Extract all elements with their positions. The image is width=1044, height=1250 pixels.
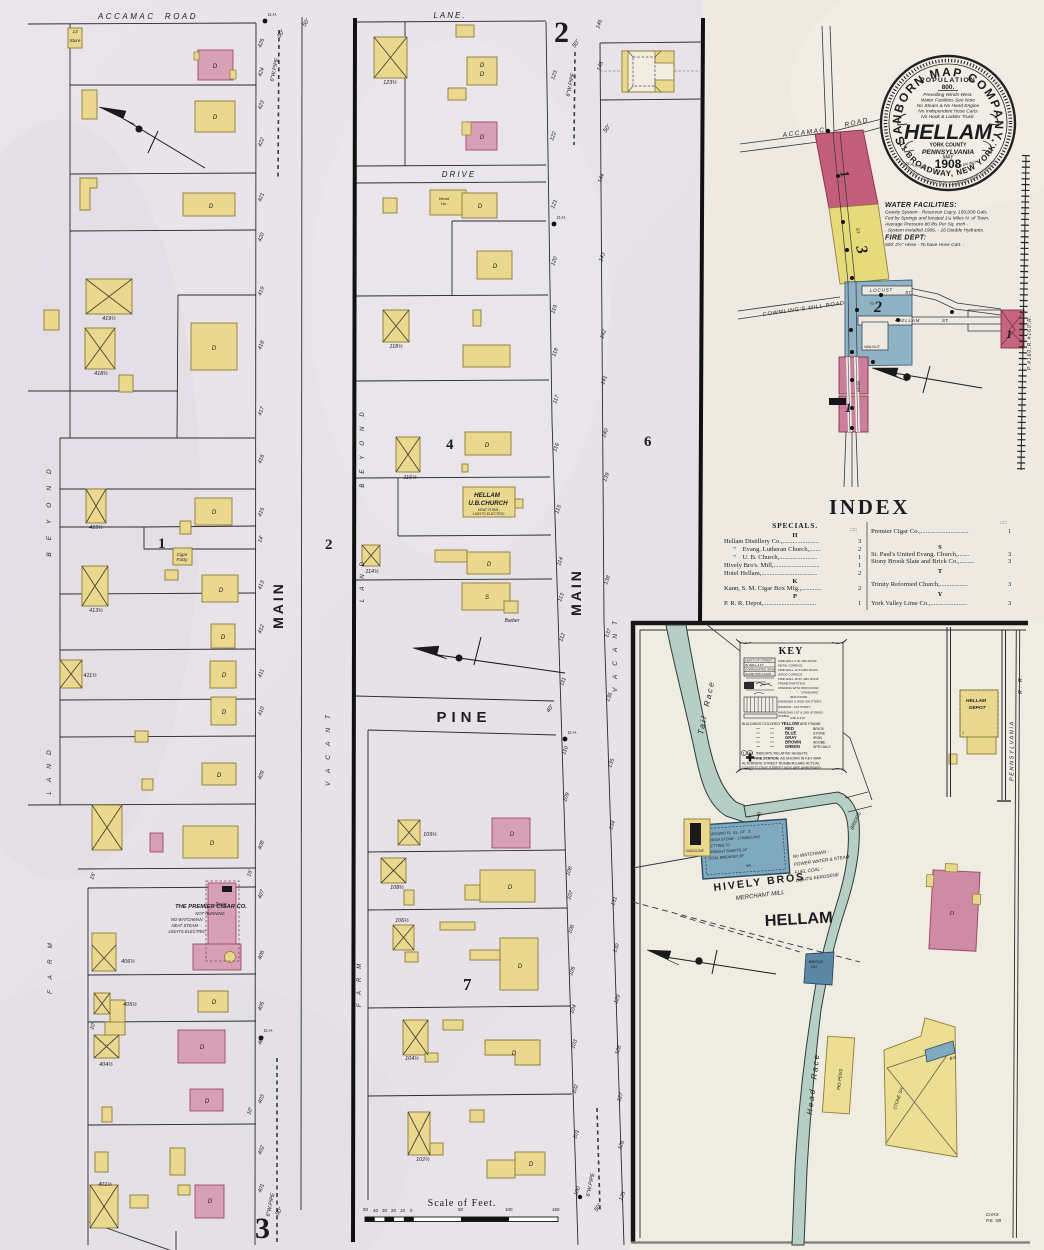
svg-text:BEYOND: BEYOND	[46, 457, 53, 556]
svg-text:½: ½	[870, 300, 874, 306]
svg-text:LIGHTS ELECTRIC.: LIGHTS ELECTRIC.	[473, 512, 506, 516]
svg-text:800.: 800.	[942, 84, 955, 91]
svg-text:118½: 118½	[389, 343, 403, 350]
svg-text:P.E. '08: P.E. '08	[986, 1218, 1002, 1223]
svg-text:D.H.: D.H.	[557, 215, 566, 220]
svg-text:D: D	[213, 64, 218, 70]
svg-text:GREEN: GREEN	[785, 744, 800, 749]
svg-text:INDEX: INDEX	[829, 495, 913, 519]
svg-text:T: T	[938, 568, 943, 575]
svg-text:413½: 413½	[89, 607, 103, 614]
svg-text:2: 2	[325, 537, 333, 553]
svg-text:- System installed 1906. - 16: - System installed 1906. - 16 Double Hyd…	[885, 228, 984, 234]
svg-text:PENNSYLVANIA: PENNSYLVANIA	[1010, 720, 1016, 781]
svg-text:D: D	[480, 72, 485, 78]
svg-text:1: 1	[158, 536, 166, 552]
svg-text:D: D	[210, 841, 215, 847]
svg-text:D: D	[493, 264, 498, 270]
svg-text:ACCAMAC ROAD: ACCAMAC ROAD	[97, 12, 198, 21]
svg-text:D: D	[217, 773, 222, 779]
svg-text:D: D	[222, 673, 227, 679]
svg-text:ST.: ST.	[942, 318, 949, 323]
svg-text:1: 1	[1008, 528, 1011, 535]
svg-text:30: 30	[382, 1208, 388, 1213]
svg-text:STONE: STONE	[813, 732, 826, 736]
svg-text:D.H.: D.H.	[568, 730, 577, 735]
svg-text:D: D	[209, 204, 214, 210]
svg-text:2: 2	[554, 16, 569, 49]
svg-text:D: D	[212, 510, 217, 516]
svg-text:D: D	[205, 1099, 210, 1105]
svg-text:MAIN: MAIN	[856, 380, 861, 392]
svg-text:ADOBE: ADOBE	[813, 741, 826, 745]
svg-text:1: 1	[858, 554, 861, 561]
svg-text:419½: 419½	[102, 315, 116, 322]
svg-text:VACANT: VACANT	[612, 612, 619, 692]
svg-text:Gravity System - Reservoir Cap: Gravity System - Reservoir Cap'y. 150,00…	[885, 210, 988, 216]
svg-text:IRON DOOR: IRON DOOR	[790, 695, 808, 699]
svg-text:Ho.: Ho.	[441, 201, 447, 206]
svg-text:ST.: ST.	[905, 290, 912, 296]
svg-text:116½: 116½	[403, 474, 417, 481]
svg-text:NOT RUNNING: NOT RUNNING	[195, 911, 225, 916]
svg-text:1: 1	[858, 600, 861, 607]
svg-text:D.H.: D.H.	[268, 12, 277, 17]
svg-text:PINE: PINE	[436, 709, 491, 726]
svg-text:4: 4	[446, 437, 454, 453]
svg-text:411½: 411½	[83, 672, 97, 679]
svg-text:BRICK: BRICK	[813, 727, 825, 731]
svg-text:1: 1	[858, 562, 861, 569]
svg-text:SPECIALS: SPECIALS	[813, 745, 831, 749]
svg-text:MAIN: MAIN	[568, 568, 584, 616]
svg-text:FIRE STATION, AS SHOWN IN KEY: FIRE STATION, AS SHOWN IN KEY MAP	[754, 757, 822, 761]
svg-text:D: D	[949, 911, 955, 917]
svg-text:114½: 114½	[365, 568, 379, 575]
svg-text:THE PREMIER CIGAR CO.: THE PREMIER CIGAR CO.	[175, 904, 247, 910]
svg-text:STABLE: STABLE	[778, 714, 789, 718]
svg-text:D: D	[518, 964, 523, 970]
svg-text:R.: R.	[757, 812, 762, 818]
svg-text:BRIDGE: BRIDGE	[809, 960, 824, 964]
svg-text:2: 2	[858, 570, 861, 577]
svg-text:LIMITS OF STREET: LIMITS OF STREET	[745, 659, 773, 663]
svg-text:HO.: HO.	[811, 965, 818, 969]
svg-text:Barber: Barber	[504, 618, 519, 624]
svg-text:40: 40	[373, 1208, 379, 1213]
svg-text:WALNUT: WALNUT	[864, 345, 881, 349]
svg-text:D: D	[512, 1051, 517, 1057]
svg-text:KEY: KEY	[779, 646, 804, 657]
svg-text:BEYOND: BEYOND	[360, 402, 366, 487]
svg-text:2ND & 4TH: 2ND & 4TH	[790, 716, 805, 720]
svg-text:SPECIALS.: SPECIALS.	[772, 521, 818, 530]
svg-text:WOOD CORNICE: WOOD CORNICE	[778, 673, 802, 677]
svg-text:D: D	[212, 346, 217, 352]
svg-text:HELLAM: HELLAM	[474, 492, 501, 499]
svg-text:S: S	[938, 544, 942, 551]
svg-text:S: S	[485, 595, 489, 601]
svg-text:FIRE WALL 18 IN. ABV ROOF: FIRE WALL 18 IN. ABV ROOF	[778, 677, 819, 681]
svg-text:BUILDINGS COLORED YELLOW ARE F: BUILDINGS COLORED YELLOW ARE FRAME	[742, 721, 821, 726]
svg-text:MAIN: MAIN	[270, 581, 286, 629]
svg-text:Water Facilities See Note: Water Facilities See Note	[921, 98, 975, 104]
svg-text:IRON: IRON	[813, 736, 822, 740]
svg-text:123½: 123½	[383, 79, 397, 86]
svg-text:D: D	[219, 588, 224, 594]
svg-text:6: 6	[644, 434, 652, 450]
svg-text:109½: 109½	[423, 831, 437, 838]
svg-text::::::: :::::	[1000, 521, 1007, 526]
svg-text:CORRUGATED IRON: CORRUGATED IRON	[745, 668, 774, 672]
svg-text:WINDOWS & IRON SHUTTERS: WINDOWS & IRON SHUTTERS	[778, 700, 821, 704]
svg-text:415½: 415½	[89, 524, 103, 531]
svg-text:INDICATE RELATIVE HEIGHTS: INDICATE RELATIVE HEIGHTS	[756, 752, 808, 756]
svg-text:D.H.: D.H.	[264, 1028, 273, 1033]
svg-text:WATER FACILITIES:: WATER FACILITIES:	[885, 202, 957, 209]
svg-text:Store: Store	[70, 38, 81, 43]
svg-text:FRAME PARTITION: FRAME PARTITION	[778, 682, 805, 686]
svg-text:DEPOT: DEPOT	[969, 705, 987, 711]
svg-text:Trinity Reformed Church,......: Trinity Reformed Church,................…	[871, 581, 968, 588]
svg-text:Prevailing Winds-West.: Prevailing Winds-West.	[923, 92, 972, 98]
svg-text:406½: 406½	[121, 958, 135, 965]
svg-text:106½: 106½	[395, 917, 409, 924]
svg-text:No Steam & No Hand Engine: No Steam & No Hand Engine	[917, 103, 980, 109]
svg-text:POPULATION: POPULATION	[920, 77, 976, 84]
svg-text:1: 1	[1006, 327, 1012, 341]
svg-text:VACANT: VACANT	[325, 706, 332, 786]
svg-text:FIRE DEPT:: FIRE DEPT:	[885, 235, 926, 242]
svg-text:10: 10	[400, 1208, 406, 1213]
svg-text:D: D	[480, 135, 485, 141]
svg-text:13: 13	[72, 29, 78, 34]
svg-text:HELLAM: HELLAM	[904, 121, 992, 144]
svg-text:NO WATCHMAN -: NO WATCHMAN -	[171, 917, 206, 922]
svg-text:” U. B. Church,............: ” U. B. Church,.......................	[733, 554, 818, 561]
svg-text:Y: Y	[938, 591, 943, 598]
svg-text:YORK COUNTY: YORK COUNTY	[930, 143, 968, 149]
svg-text:FIRE: FIRE	[831, 400, 840, 405]
svg-text:Average Pressure 80 lbs Per Sq: Average Pressure 80 lbs Per Sq. Inch -	[884, 222, 969, 228]
svg-text:Fed by Springs and located 1¼: Fed by Springs and located 1¼ Miles N. o…	[885, 216, 989, 222]
svg-text:D: D	[200, 1045, 205, 1051]
svg-text:D: D	[508, 885, 513, 891]
svg-text:Premier Cigar Co.,............: Premier Cigar Co.,......................…	[871, 528, 969, 535]
svg-text:U.B.CHURCH: U.B.CHURCH	[468, 500, 508, 507]
svg-text:1: 1	[962, 731, 964, 735]
svg-text:D: D	[510, 832, 515, 838]
svg-text:50: 50	[458, 1207, 464, 1212]
svg-text:7: 7	[463, 975, 472, 994]
svg-text:FIRE WALL 12 IN ABV ROOF: FIRE WALL 12 IN ABV ROOF	[778, 668, 818, 672]
svg-text:Facty: Facty	[176, 557, 188, 562]
svg-text:CHAS: CHAS	[986, 1212, 999, 1217]
svg-text:METAL CORNICE: METAL CORNICE	[778, 664, 802, 668]
svg-text:D: D	[213, 115, 218, 121]
svg-text:5A.: 5A.	[746, 864, 752, 868]
svg-text:Hellam Distillery Co.,........: Hellam Distillery Co.,..................…	[724, 538, 819, 545]
svg-text:GASOLINE: GASOLINE	[686, 849, 705, 853]
svg-text:P. R. R. Depot,...............: P. R. R. Depot,.........................…	[724, 600, 816, 607]
svg-text:1: 1	[743, 752, 745, 756]
svg-text::::::: :::::	[850, 528, 857, 533]
svg-text:” Evang. Lutheran Church,..: ” Evang. Lutheran Church,.......	[733, 546, 821, 553]
svg-text:LAND: LAND	[46, 741, 53, 794]
svg-text:Hively Bro's. Mill,...........: Hively Bro's. Mill,.....................…	[724, 562, 820, 569]
svg-text:York Valley Lime Co.,.........: York Valley Lime Co.,...................…	[871, 600, 967, 607]
svg-text:D: D	[222, 710, 227, 716]
svg-text:500' 2½" Hose - To have Hose C: 500' 2½" Hose - To have Hose Cart. -	[885, 241, 965, 248]
svg-text:100: 100	[505, 1207, 513, 1212]
svg-text:D: D	[221, 635, 226, 641]
svg-text:Stony Brook Slate and Brick Co: Stony Brook Slate and Brick Co.,........…	[871, 558, 975, 565]
svg-text:LAND: LAND	[360, 554, 366, 602]
svg-text:D: D	[529, 1162, 534, 1168]
svg-text:104½: 104½	[405, 1055, 419, 1062]
svg-text:•HELLAM: •HELLAM	[895, 318, 920, 323]
svg-text:102½: 102½	[416, 1156, 430, 1163]
svg-text:HELLAM: HELLAM	[764, 909, 833, 930]
svg-text:108½: 108½	[390, 884, 404, 891]
svg-text:150: 150	[552, 1207, 560, 1212]
svg-text:DRIVE: DRIVE	[442, 170, 476, 179]
svg-text:IN WALL 4 FT: IN WALL 4 FT	[745, 663, 764, 667]
svg-text:Kann, S. M. Cigar Box Mfg.,...: Kann, S. M. Cigar Box Mfg.,............	[724, 585, 821, 592]
svg-text:K: K	[792, 578, 798, 585]
svg-text:D: D	[212, 1000, 217, 1006]
svg-text:FIRE WALL 6 IN. ABV ROOF: FIRE WALL 6 IN. ABV ROOF	[778, 659, 817, 663]
svg-text:LOCUST: LOCUST	[870, 287, 894, 293]
svg-text:LANE.: LANE.	[433, 11, 466, 20]
svg-text:OPENING WITH IRON DOOR: OPENING WITH IRON DOOR	[778, 686, 819, 690]
svg-text:No Hook & Ladder Truck.: No Hook & Ladder Truck.	[921, 114, 975, 120]
svg-text:" " "STANDARD": " " "STANDARD"	[790, 691, 819, 695]
svg-text:FARM: FARM	[357, 955, 363, 1008]
svg-text:D: D	[487, 562, 492, 568]
svg-text:404½: 404½	[99, 1061, 113, 1068]
svg-text:P: P	[793, 593, 797, 600]
svg-text:405½: 405½	[123, 1001, 137, 1008]
svg-text:2: 2	[858, 585, 861, 592]
svg-text:2: 2	[858, 546, 861, 553]
svg-text:St. Paul's United Evang. Churc: St. Paul's United Evang. Church,.......	[871, 551, 970, 558]
svg-text:FARM: FARM	[47, 932, 54, 994]
svg-text:Hotel Hellam,.................: Hotel Hellam,...........................…	[724, 570, 818, 577]
svg-text:R. R.: R. R.	[1018, 673, 1024, 694]
svg-text:WINDOW - 1ST STORY.: WINDOW - 1ST STORY.	[778, 705, 811, 709]
svg-text:D: D	[480, 63, 485, 69]
svg-text:LIGHTS ELECTRIC: LIGHTS ELECTRIC	[169, 929, 207, 934]
svg-text:HEAT STEAM -: HEAT STEAM -	[171, 923, 201, 928]
svg-text:418½: 418½	[94, 370, 108, 377]
svg-text:P.P. R. R.#160;R.P. R. R.#160;: P.P. R. R.#160;R.P. R. R.#160;R.	[1027, 315, 1033, 370]
svg-text:20: 20	[391, 1208, 397, 1213]
svg-text:2: 2	[873, 299, 882, 316]
svg-text:CONSECUTIVE STREET NOS ARE ARB: CONSECUTIVE STREET NOS ARE ARBITRARY	[742, 766, 822, 770]
svg-text:401½: 401½	[98, 1181, 112, 1188]
svg-text:SLATE WITH IRON: SLATE WITH IRON	[745, 672, 771, 676]
svg-text:D: D	[478, 204, 483, 210]
svg-text:D: D	[485, 443, 490, 449]
svg-text:HELLAM: HELLAM	[966, 698, 987, 704]
svg-text:No Independent Hose Carts: No Independent Hose Carts	[918, 109, 978, 115]
svg-text:50: 50	[363, 1207, 369, 1212]
svg-text:D: D	[208, 1199, 213, 1205]
